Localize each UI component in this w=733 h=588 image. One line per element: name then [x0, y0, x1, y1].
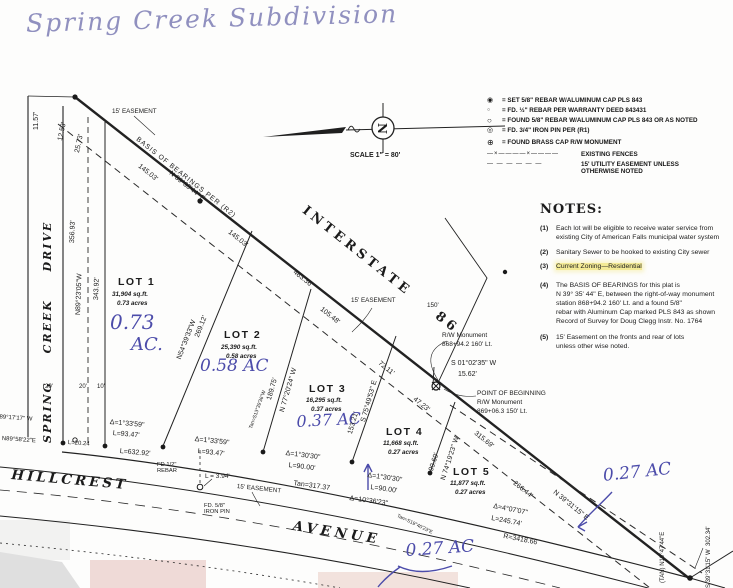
found-iron-pin-note: FD. 5/8" IRON PIN	[204, 503, 230, 516]
note-item-3: (3) Current Zoning—Residential	[540, 263, 733, 272]
note-number: (2)	[540, 249, 548, 258]
dim-20a: 20'	[45, 384, 53, 391]
corner-vertex-dot	[687, 575, 693, 581]
notes-heading: NOTES:	[540, 202, 733, 217]
legend-text: = FD. ½" REBAR PER WARRANTY DEED 843431	[502, 107, 646, 114]
scan-shade	[0, 520, 70, 560]
lot4-name: LOT 4	[386, 426, 423, 438]
set-rebar-icon: ◉	[487, 97, 502, 104]
dim-10: 10'	[97, 384, 105, 391]
legend-row: ⊕ = FOUND BRASS CAP R/W MONUMENT	[487, 139, 698, 147]
note-text: Sanitary Sewer to be hooked to existing …	[556, 249, 709, 256]
note-text: Each lot will be eligible to receive wat…	[556, 225, 719, 241]
lot1-sqft: 31,904 sq.ft.	[112, 291, 148, 298]
note-item-5: (5) 15' Easement on the fronts and rear …	[540, 334, 733, 352]
legend-row: ○ = FOUND 5/8" REBAR W/ALUMINUM CAP PLS …	[487, 117, 698, 125]
legend: ◉ = SET 5/8" REBAR W/ALUMINUM CAP PLS 84…	[487, 97, 698, 178]
road-dot-4	[261, 450, 266, 455]
dim-150: 150'	[427, 303, 439, 310]
survey-plat-page: N Spring Creek Subdivision ◉ = SET 5/8" …	[0, 0, 733, 588]
scale-label: SCALE 1" = 80'	[350, 152, 400, 160]
rw-monument-station: 868+94.2 160' Lt.	[442, 341, 492, 348]
lot2-sqft: 25,390 sq.ft.	[221, 344, 257, 351]
note-item-4: (4) The BASIS OF BEARINGS for this plat …	[540, 282, 733, 326]
note-text: 15' Easement on the fronts and rear of l…	[556, 334, 684, 350]
easement-line-icon: — — — — — —	[487, 161, 581, 167]
legend-row: —×————×———— EXISTING FENCES	[487, 151, 698, 158]
hillcrest-centerline	[0, 490, 560, 588]
scan-pink-patch-1	[90, 560, 206, 588]
dim-monument-tie: 15.62'	[458, 371, 477, 379]
note-number: (4)	[540, 282, 548, 291]
lot3-name: LOT 3	[309, 383, 346, 395]
dim-20b: 20'	[79, 384, 87, 391]
north-tie-line	[28, 96, 75, 97]
handwritten-lot1-ac: AC.	[131, 334, 163, 355]
tangent-bearing-right-edge: (TAN) N19°47'44"E	[660, 532, 667, 583]
legend-text: = FOUND BRASS CAP R/W MONUMENT	[502, 139, 621, 146]
scan-pink-patch-2	[318, 572, 458, 588]
tie-line-dot	[503, 270, 507, 274]
rw-monument-label: R/W Monument	[442, 332, 487, 339]
note-number: (3)	[540, 263, 548, 272]
pob-monument-station: 869+06.3 150' Lt.	[477, 408, 527, 415]
dim-tick-1157: 11.57'	[33, 112, 41, 130]
legend-text: 15' UTILITY EASEMENT UNLESS OTHERWISE NO…	[581, 161, 679, 176]
legend-text: EXISTING FENCES	[581, 151, 638, 158]
note-number: (5)	[540, 334, 548, 343]
note-number: (1)	[540, 225, 548, 234]
lot4-sqft: 11,668 sq.ft.	[383, 440, 419, 447]
road-dot-3	[161, 445, 166, 450]
point-of-beginning-label: POINT OF BEGINNING	[477, 390, 546, 397]
note-item-2: (2) Sanitary Sewer to be hooked to exist…	[540, 249, 733, 258]
lot5-name: LOT 5	[453, 466, 490, 478]
legend-row: ◎ = FD. 3/4" IRON PIN PER (R1)	[487, 127, 698, 134]
road-dot-1	[61, 441, 66, 446]
north-letter: N	[375, 123, 389, 134]
note-text-highlighted: Current Zoning—Residential	[556, 263, 642, 270]
corner-label-leader	[695, 548, 703, 568]
notes-block: NOTES: (1) Each lot will be eligible to …	[540, 202, 733, 358]
found-rebar-icon: ○	[487, 117, 502, 125]
handwritten-lot1-acres: 0.73	[110, 310, 155, 334]
road-dot-2	[103, 444, 108, 449]
dim-west-356: 356.93'	[69, 220, 77, 243]
legend-text: = FOUND 5/8" REBAR W/ALUMINUM CAP PLS 84…	[502, 117, 698, 124]
lot5-acres: 0.27 acres	[455, 489, 485, 496]
curve4-length: L=20.24	[68, 440, 90, 448]
road-name-spring-creek-drive: SPRING CREEK DRIVE	[42, 221, 54, 443]
found-rebar-note: FD 1/2" REBAR	[157, 462, 177, 475]
easement-label-mid: 15' EASEMENT	[351, 298, 396, 305]
easement-label-top: 15' EASEMENT	[112, 109, 157, 116]
bearing-monument-tie: S 01°02'35" W	[451, 360, 496, 368]
found-iron-pin-circle	[197, 484, 203, 490]
lot1-acres: 0.73 acres	[117, 300, 147, 307]
pob-monument-label: R/W Monument	[477, 399, 522, 406]
lot4-acres: 0.27 acres	[388, 449, 418, 456]
lot5-sqft: 11,877 sq.ft.	[450, 480, 486, 487]
lot2-name: LOT 2	[224, 329, 261, 341]
easement-top-leader	[134, 116, 155, 135]
iron-pin-icon: ◎	[487, 127, 502, 134]
lot3-sqft: 16,295 sq.ft.	[306, 397, 342, 404]
bearing-right-edge: S 39°31'15" W 302.34'	[706, 526, 713, 588]
legend-row: ◉ = SET 5/8" REBAR W/ALUMINUM CAP PLS 84…	[487, 97, 698, 104]
legend-text: = FD. 3/4" IRON PIN PER (R1)	[502, 127, 590, 134]
legend-text: = SET 5/8" REBAR W/ALUMINUM CAP PLS 843	[502, 97, 642, 104]
corner-monument-dot	[72, 94, 77, 99]
note-text: The BASIS OF BEARINGS for this plat is N…	[556, 282, 715, 324]
fence-line-icon: —×————×————	[487, 151, 581, 157]
dim-west-dash-343: 343.92'	[93, 277, 101, 300]
easement-bot-leader	[252, 492, 260, 506]
lot1-name: LOT 1	[118, 276, 155, 288]
found-half-rebar-icon: ○	[487, 107, 502, 113]
legend-row: — — — — — — 15' UTILITY EASEMENT UNLESS …	[487, 161, 698, 176]
handwritten-lot2-acres: 0.58 AC	[200, 356, 269, 376]
legend-row: ○ = FD. ½" REBAR PER WARRANTY DEED 84343…	[487, 107, 698, 114]
dim-l394: L = 3.94'	[205, 473, 230, 480]
brass-cap-monument	[432, 382, 440, 390]
brass-cap-icon: ⊕	[487, 139, 502, 147]
road-dot-5	[350, 460, 355, 465]
note-item-1: (1) Each lot will be eligible to receive…	[540, 225, 733, 243]
bearing-west-n892305: N89°23'05"W	[75, 273, 84, 315]
